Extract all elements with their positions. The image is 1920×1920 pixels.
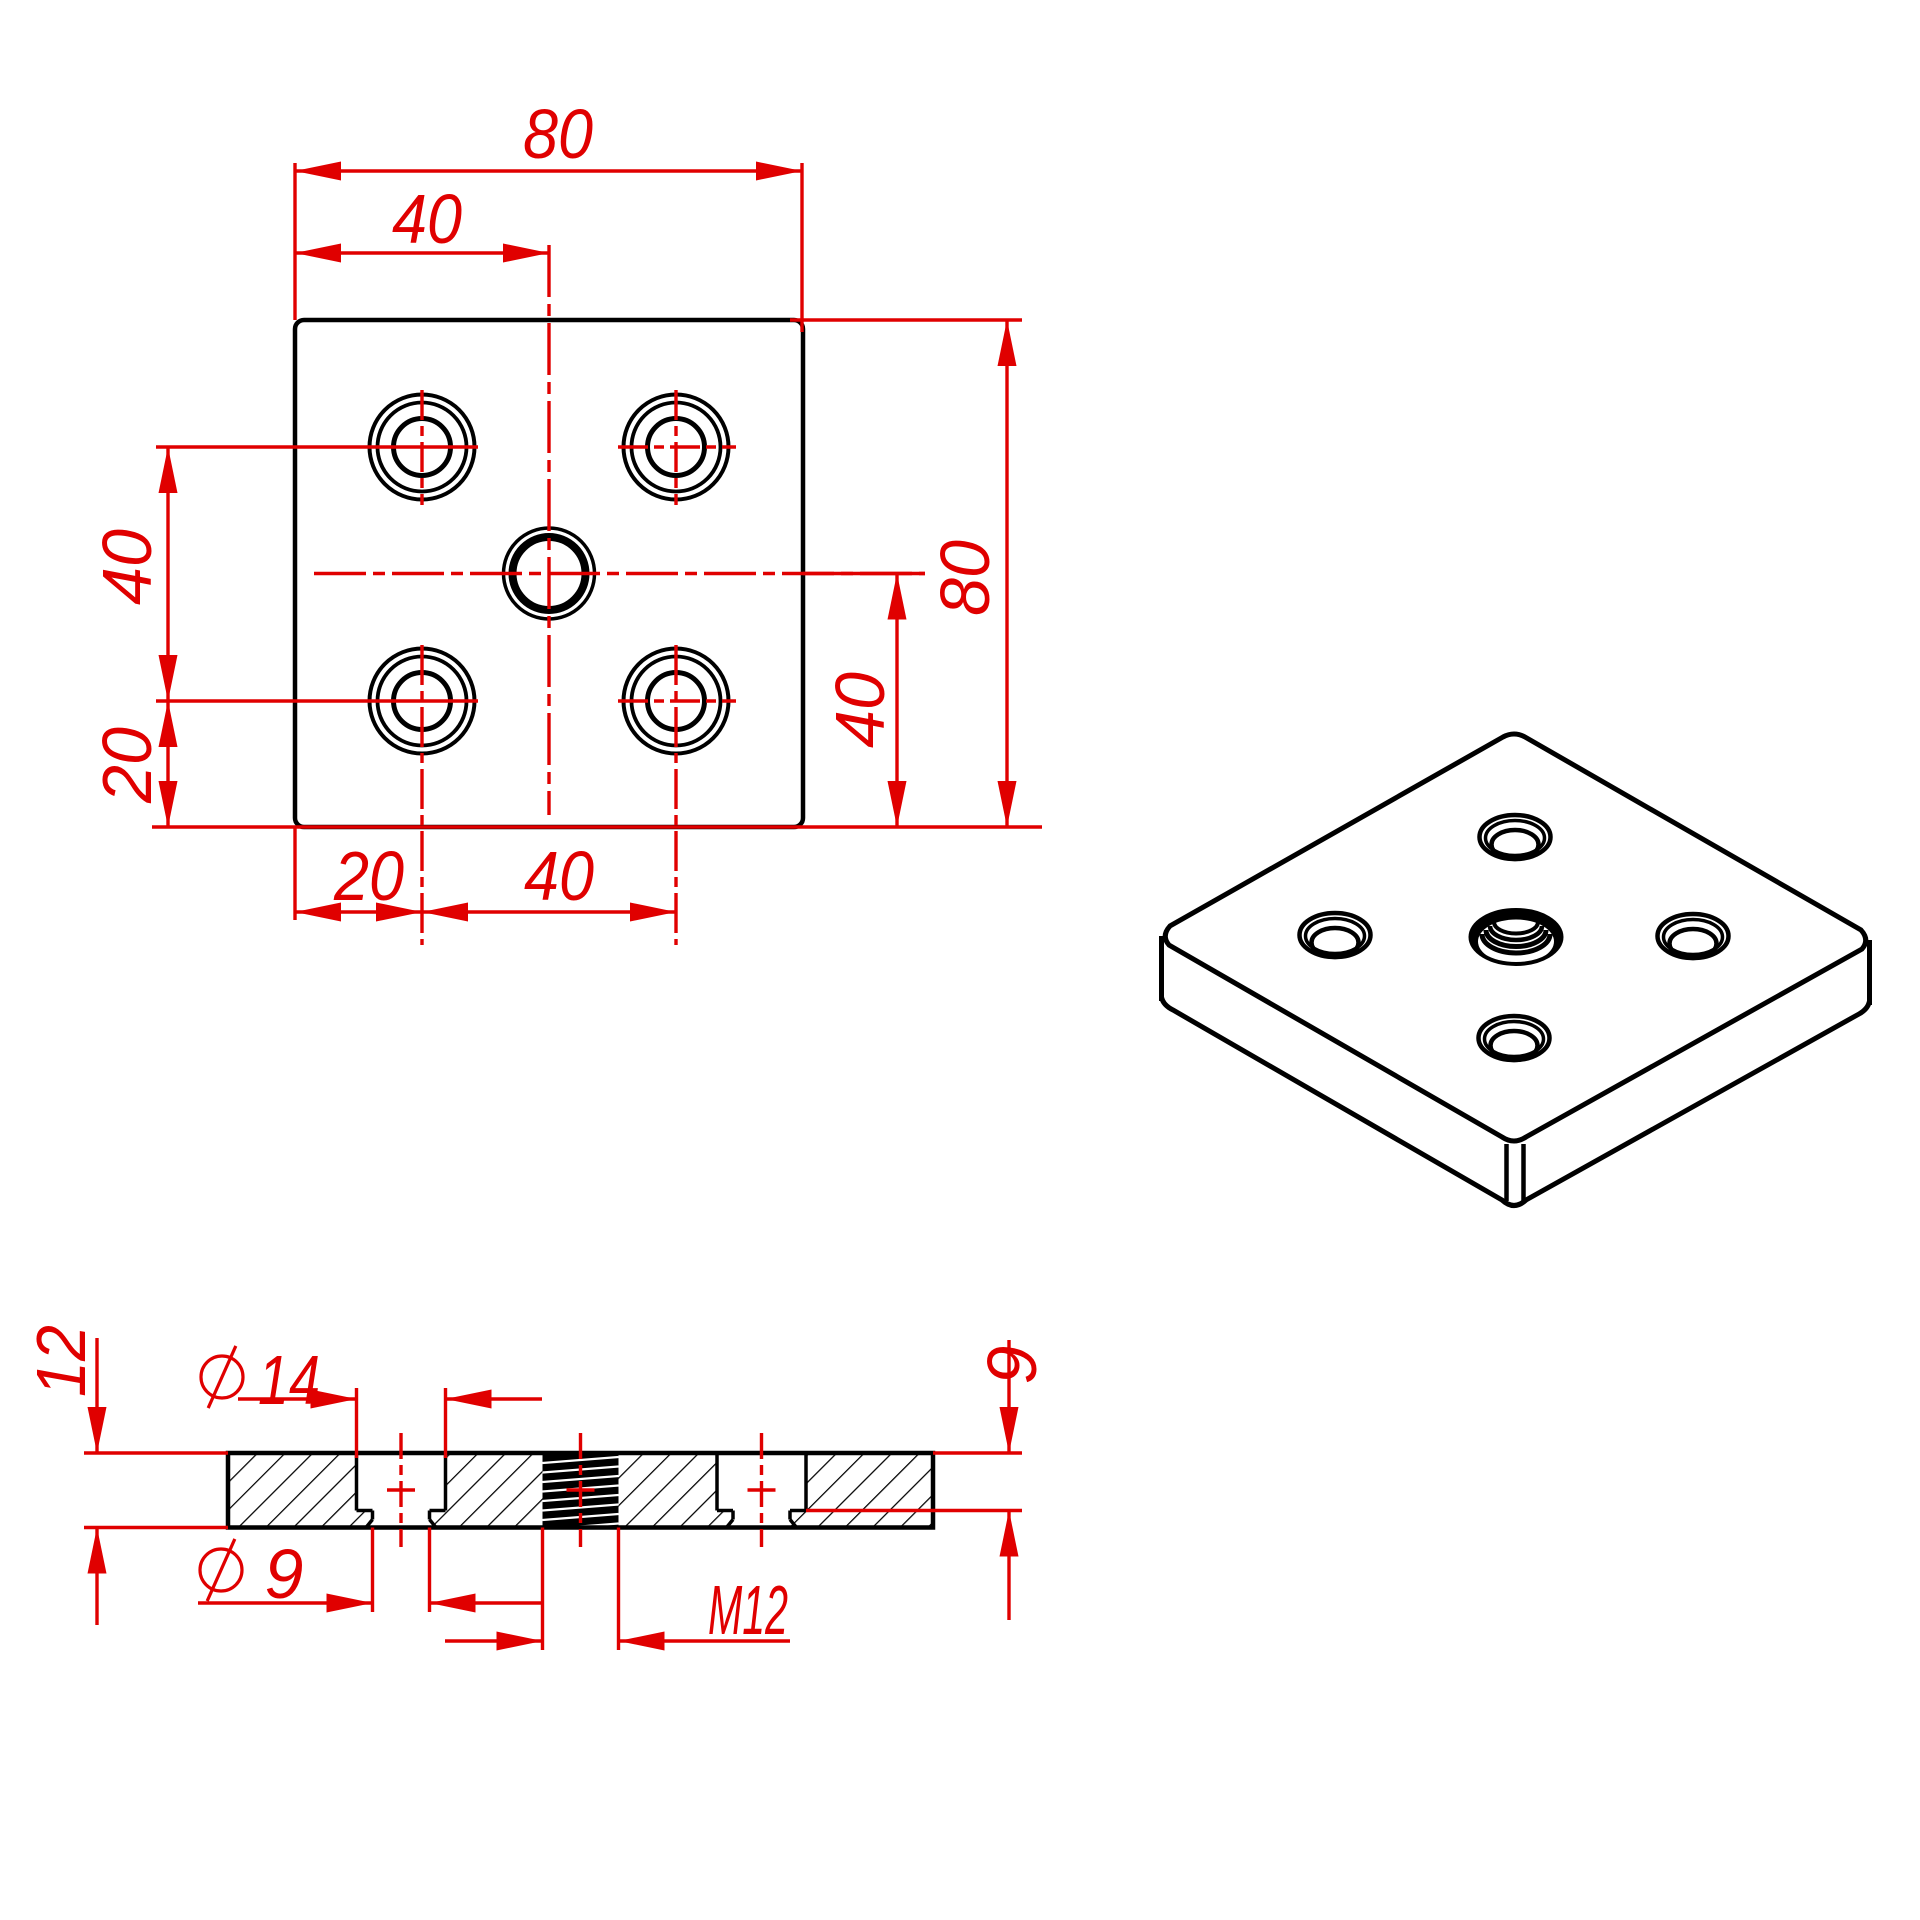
svg-text:M12: M12: [708, 1571, 788, 1649]
svg-text:20: 20: [88, 727, 166, 804]
svg-text:40: 40: [392, 180, 462, 258]
svg-text:20: 20: [333, 837, 404, 915]
svg-text:9: 9: [265, 1535, 304, 1613]
svg-text:80: 80: [523, 95, 593, 173]
svg-text:12: 12: [22, 1325, 100, 1397]
svg-text:9: 9: [973, 1346, 1051, 1385]
svg-text:40: 40: [821, 672, 899, 748]
svg-text:40: 40: [88, 529, 166, 605]
svg-text:80: 80: [926, 540, 1004, 616]
svg-text:40: 40: [524, 837, 594, 915]
svg-text:14: 14: [258, 1341, 320, 1419]
